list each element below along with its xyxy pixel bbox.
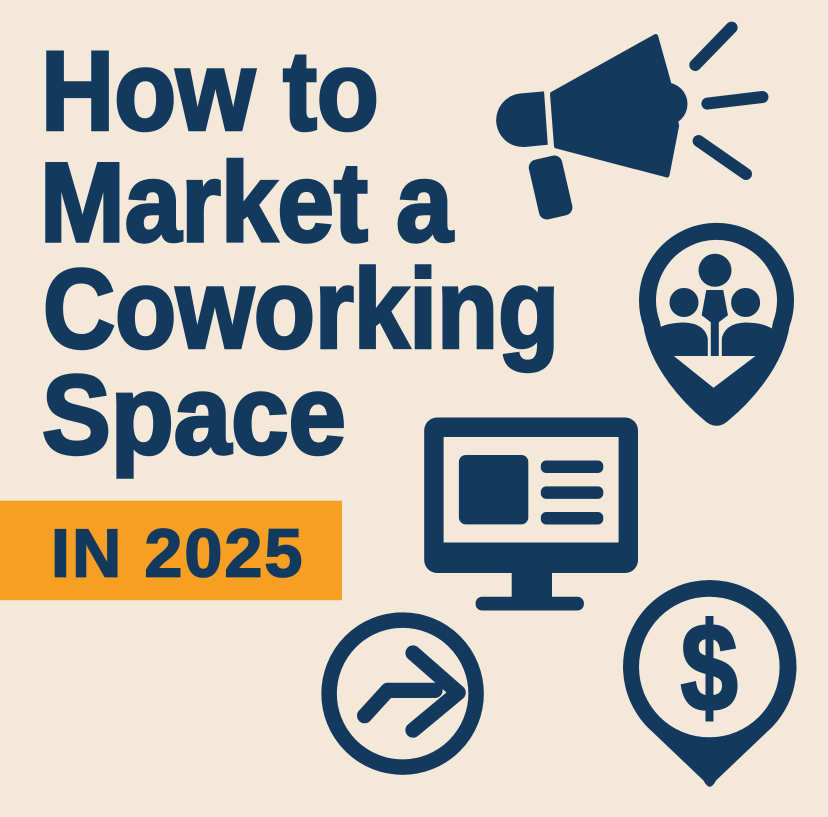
svg-text:Market a: Market a	[40, 139, 454, 265]
svg-text:Space: Space	[42, 353, 346, 478]
svg-text:How to: How to	[41, 28, 379, 154]
svg-text:IN 2025: IN 2025	[51, 515, 305, 591]
svg-text:$: $	[681, 598, 738, 738]
